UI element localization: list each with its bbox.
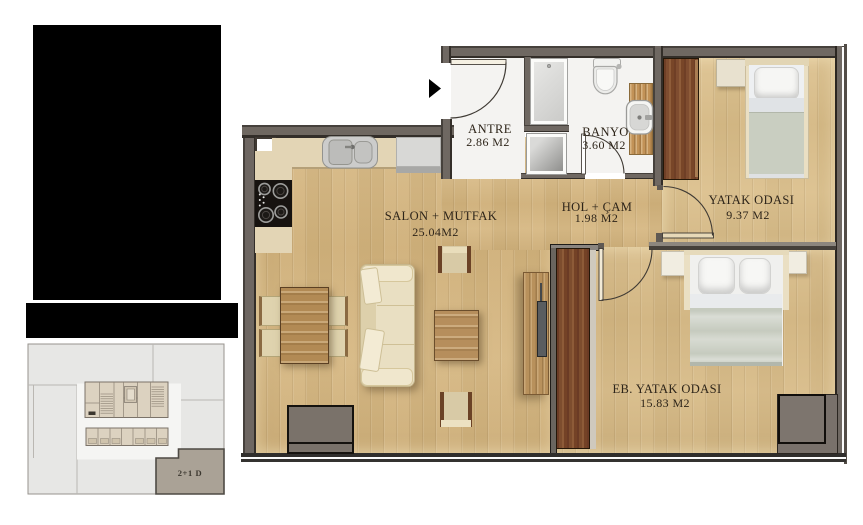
svg-text:2+1 D: 2+1 D xyxy=(178,468,203,478)
